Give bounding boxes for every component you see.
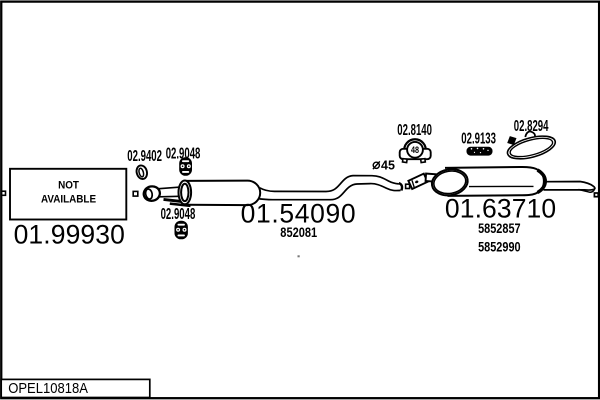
svg-text:OPEL10818A: OPEL10818A	[8, 379, 88, 396]
svg-text:852081: 852081	[280, 225, 317, 241]
svg-text:01.99930: 01.99930	[14, 220, 125, 250]
svg-text:5852990: 5852990	[478, 239, 521, 255]
svg-text:5852857: 5852857	[478, 221, 521, 237]
svg-text:48: 48	[411, 145, 419, 155]
svg-text:02.9048: 02.9048	[161, 205, 196, 223]
svg-text:02.9402: 02.9402	[127, 146, 162, 164]
svg-text:01.63710: 01.63710	[445, 193, 556, 223]
svg-text:AVAILABLE: AVAILABLE	[41, 194, 96, 206]
svg-text:02.9133: 02.9133	[461, 129, 496, 147]
svg-text:NOT: NOT	[58, 180, 79, 192]
svg-text:02.8140: 02.8140	[397, 121, 432, 139]
svg-text:45: 45	[381, 158, 395, 172]
